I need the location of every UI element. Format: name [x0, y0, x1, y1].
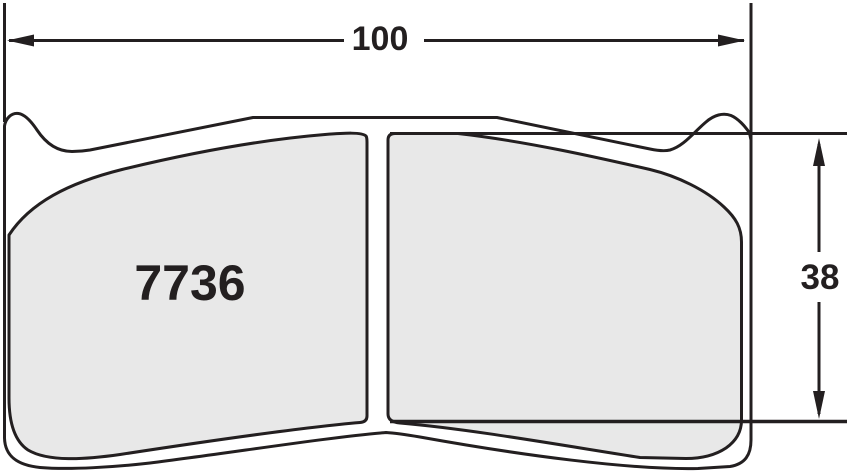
width-arrow-left-icon [7, 35, 34, 47]
height-arrow-down-icon [813, 391, 825, 419]
width-arrow-right-icon [718, 35, 745, 47]
right-pad-friction-surface [388, 134, 742, 459]
brake-pad-drawing: 100 38 7736 [0, 0, 849, 472]
brake-pad-drawing-canvas: 100 38 7736 [0, 0, 849, 472]
height-dimension-label: 38 [801, 258, 840, 297]
height-arrow-up-icon [813, 138, 825, 166]
width-dimension-label: 100 [352, 20, 409, 58]
part-number-label: 7736 [134, 255, 245, 311]
